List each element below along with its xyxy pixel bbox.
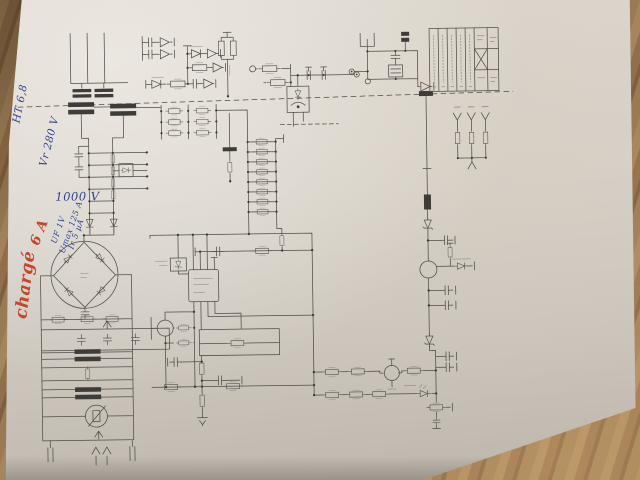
regulator-ic-cluster [150,233,314,387]
diode-icon [62,253,74,265]
resistor-icon [167,79,189,89]
paper-sheet: Largeur 15,7, HT 6,8 Vr 280 V chargé 6 A… [0,0,640,480]
led-arrows [419,385,426,389]
capacitor-icon [442,363,454,372]
resistor-icon [166,129,183,137]
terminal-dot [356,74,358,76]
wire [136,104,247,140]
led-icon [418,390,431,397]
inductor-icon [223,147,237,151]
capacitor-icon [391,51,400,63]
crossed-cell [474,49,487,70]
resistor-icon [193,107,210,115]
wire [40,274,170,455]
buffer-arrow-icon [213,63,222,72]
capacitor-icon [75,163,83,174]
inductor-icon [424,194,431,209]
right-regulator-chain [418,96,477,429]
bottom-right-sense-rows [314,358,437,399]
resistor-icon [218,38,224,60]
resistor-icon [230,37,236,59]
optocoupler-feedback-group [250,63,360,127]
wire [453,113,490,169]
terminal-dot [351,71,353,73]
middle-resistor-grid [136,104,248,183]
buffer-arrow-icon [160,38,169,47]
junction-dots [80,49,490,400]
isolation-dashed-line [18,90,513,128]
capacitor-icon [441,301,453,310]
transformer-icon [75,387,101,399]
buffer-arrow-icon [160,50,169,59]
resistor-icon [86,367,90,381]
resistor-icon [228,160,232,174]
resistor-icon [347,390,366,399]
transformer-icon [110,104,136,116]
top-output-buffers [142,32,237,97]
resistor-icon [176,324,191,331]
wire [142,36,172,60]
boxed-capacitor-icon [389,65,403,77]
capacitor-icon [442,352,454,361]
resistor-icon [165,107,182,115]
resistor-icon [166,118,183,126]
wire [221,32,234,96]
capacitor-icon [433,417,440,427]
bottom-left-filter-stack [40,274,171,466]
transformer-icon [95,89,114,98]
resistor-icon [369,390,388,399]
diode-icon [149,80,165,88]
optocoupler-icon [287,86,309,112]
transformer-icon [75,349,101,361]
title-block-table [429,27,499,91]
capacitor-icon [103,334,111,345]
buffer-arrow-icon [421,82,430,91]
resistor-icon [348,367,367,376]
photo-of-schematic: Largeur 15,7, HT 6,8 Vr 280 V chargé 6 A… [0,0,640,480]
resistor-icon [323,390,342,399]
arrester-icon [455,130,460,147]
zener-diode-icon [423,217,433,232]
relay-module-icon [199,329,279,356]
arrester-icon [483,129,488,146]
buffer-arrow-icon [207,49,216,58]
wire [314,358,436,395]
resistor-icon [322,367,341,376]
resistor-icon [448,245,452,259]
top-right-cap-network [349,31,434,92]
capacitor-icon [170,357,182,366]
surge-arrester-group [453,107,490,169]
wire [150,233,314,387]
capacitor-icon [75,150,83,161]
transformer-icon [68,102,94,114]
capacitor-icon [441,286,453,295]
diode-icon [121,168,131,173]
resistor-icon [259,64,281,74]
transistor-icon [384,365,399,380]
resistor-icon [267,78,289,88]
io-port-icon [250,66,256,72]
arrester-icon [469,129,474,146]
capacitor-icon [214,376,226,385]
diode-icon [455,263,468,270]
polarized-cap-icon [401,32,409,36]
resistor-icon [200,392,205,409]
bottom-middle-network [152,354,315,426]
led-icon [188,50,204,58]
varistor-icon [85,405,107,427]
wire [199,343,279,344]
capacitor-icon [189,79,201,88]
resistor-icon [194,129,211,137]
zener-diode-icon [175,259,182,269]
capacitor-icon [144,50,156,59]
polarized-cap-icon [401,38,409,42]
buffer-arrow-icon [204,79,213,88]
circuit-schematic [0,0,640,480]
resistor-icon [176,339,191,346]
resistor-icon [280,233,284,247]
zener-diode-icon [424,333,434,348]
resistor-icon [404,366,423,375]
capacitor-icon [144,38,156,47]
sheet-content: Largeur 15,7, HT 6,8 Vr 280 V chargé 6 A… [0,0,640,480]
diode-icon [94,252,106,264]
wire [256,64,355,127]
resistor-icon [228,339,247,348]
terminal-icon [48,447,135,466]
resistor-icon [427,403,446,412]
resistor-icon [194,118,211,126]
transistor-icon [420,261,437,278]
ic-chip-icon [188,269,218,301]
resistor-icon [189,63,211,73]
transformer-icon [73,89,92,98]
capacitor-icon [77,334,85,345]
wire [422,96,475,429]
